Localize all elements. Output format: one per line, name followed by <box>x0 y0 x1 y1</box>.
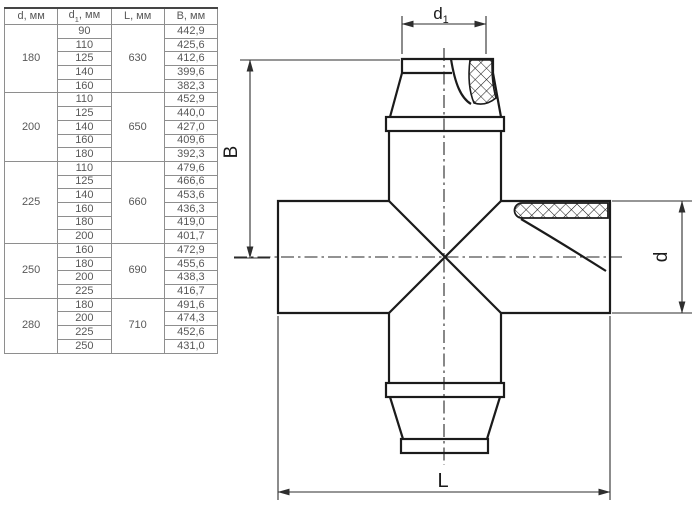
bottom-taper <box>390 397 500 439</box>
top-seal-hatch <box>469 60 496 104</box>
d-label: d <box>651 252 672 263</box>
b-label: B <box>221 146 242 159</box>
right-arm-cut-curve <box>521 219 606 271</box>
top-socket-cut-curve <box>451 59 471 104</box>
l-label: L <box>437 470 448 492</box>
cross-fitting-drawing: d1 B d L <box>0 0 700 514</box>
b-extension-lines <box>234 60 400 258</box>
upper-collar-band <box>386 117 504 131</box>
right-seal-hatch <box>515 203 608 218</box>
upper-body-sides <box>389 131 501 201</box>
lower-body-sides <box>389 313 501 383</box>
lower-collar-band <box>386 383 504 397</box>
page: d, ммd1, ммL, ммB, мм 18090630442,911042… <box>0 0 700 514</box>
d1-label: d1 <box>433 4 449 26</box>
